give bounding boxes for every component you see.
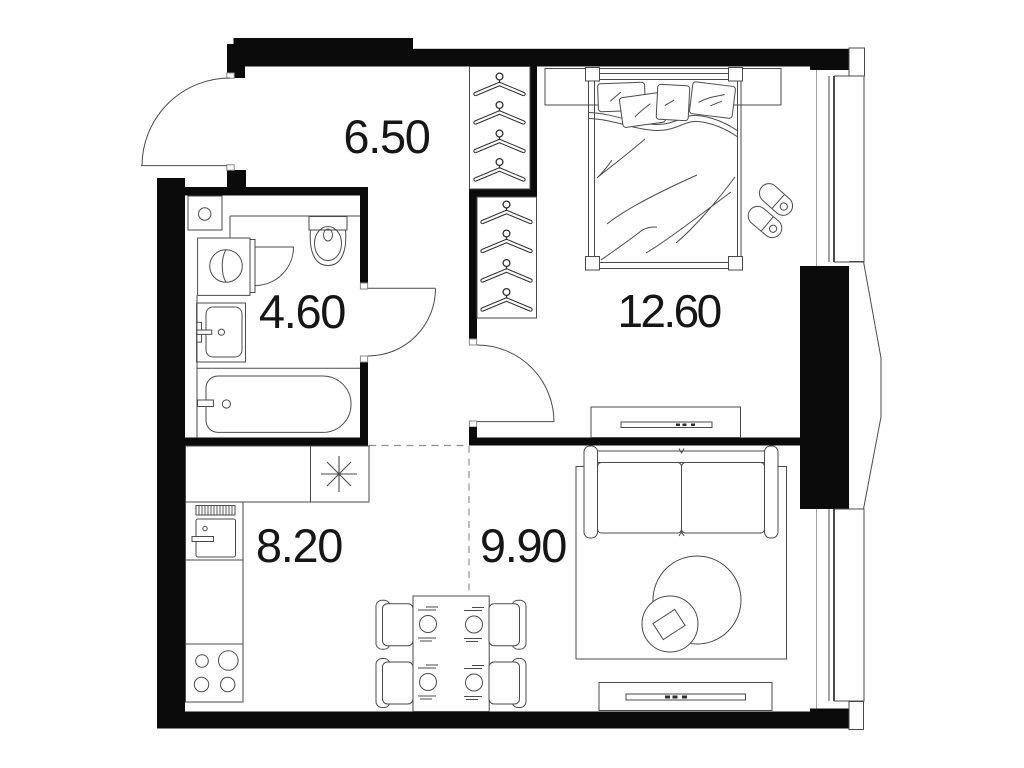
svg-text:6.50: 6.50	[343, 110, 429, 163]
svg-text:9.90: 9.90	[480, 519, 566, 572]
svg-text:8.20: 8.20	[256, 519, 342, 572]
svg-text:4.60: 4.60	[259, 285, 345, 338]
svg-text:12.60: 12.60	[617, 285, 720, 337]
